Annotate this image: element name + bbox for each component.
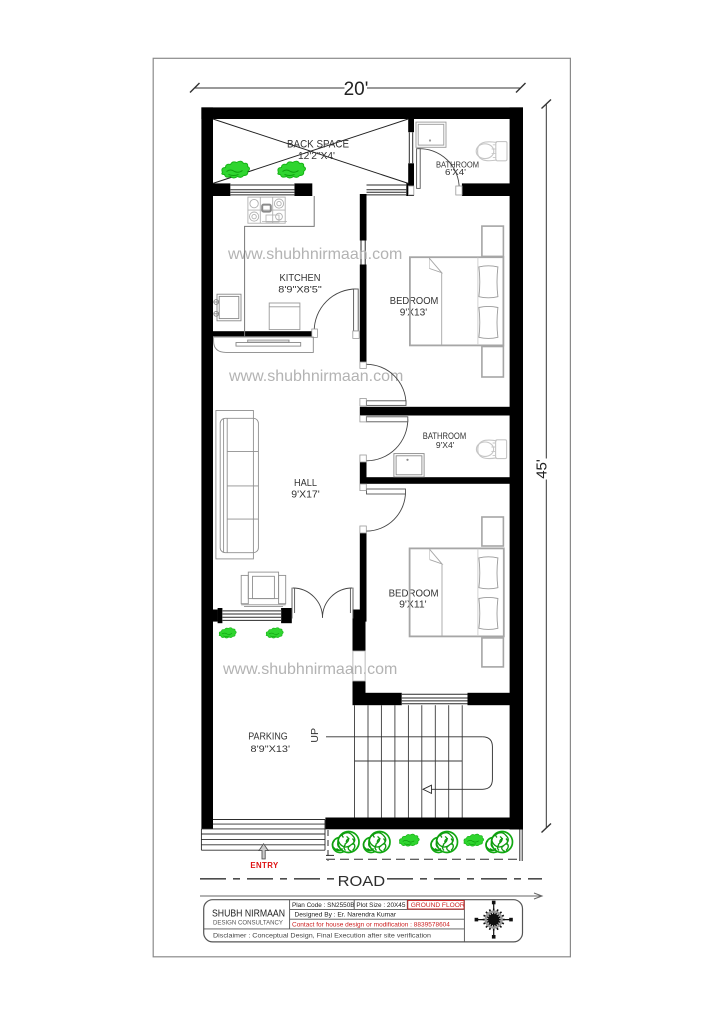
- svg-text:Disclaimer : Conceptual Design: Disclaimer : Conceptual Design, Final Ex…: [213, 933, 431, 940]
- svg-text:Plan Code : SN2550B: Plan Code : SN2550B: [292, 902, 355, 909]
- svg-text:PARKING: PARKING: [248, 730, 288, 742]
- svg-text:SHUBH NIRMAAN: SHUBH NIRMAAN: [212, 909, 285, 920]
- svg-text:DESIGN CONSULTANCY: DESIGN CONSULTANCY: [213, 920, 283, 927]
- svg-text:BEDROOM: BEDROOM: [390, 295, 439, 307]
- svg-text:9'X13': 9'X13': [400, 307, 428, 318]
- svg-text:9'X4': 9'X4': [436, 440, 455, 450]
- svg-text:www.shubhnirmaan.com: www.shubhnirmaan.com: [228, 368, 403, 385]
- svg-text:www.shubhnirmaan.com: www.shubhnirmaan.com: [222, 661, 397, 678]
- svg-text:HALL: HALL: [294, 478, 317, 489]
- svg-text:BEDROOM: BEDROOM: [389, 588, 439, 600]
- svg-text:BACK SPACE: BACK SPACE: [287, 139, 349, 151]
- svg-text:8'9"X13': 8'9"X13': [251, 744, 291, 755]
- svg-text:20': 20': [344, 79, 369, 100]
- svg-text:12'2"X4': 12'2"X4': [298, 151, 335, 162]
- svg-text:ENTRY: ENTRY: [250, 861, 279, 870]
- svg-text:Plot Size : 20X45: Plot Size : 20X45: [356, 902, 405, 909]
- svg-text:KITCHEN: KITCHEN: [280, 273, 321, 284]
- svg-text:9'X17': 9'X17': [291, 489, 320, 500]
- svg-text:8'9"X8'5": 8'9"X8'5": [278, 285, 322, 296]
- svg-text:Contact for house design or mo: Contact for house design or modification…: [292, 921, 450, 928]
- svg-text:ROAD: ROAD: [338, 873, 386, 890]
- svg-text:UP: UP: [309, 728, 321, 743]
- svg-text:Designed By : Er. Narendra Kum: Designed By : Er. Narendra Kumar: [295, 912, 397, 919]
- svg-text:9'X11': 9'X11': [399, 599, 427, 610]
- svg-text:www.shubhnirmaan.com: www.shubhnirmaan.com: [227, 246, 402, 263]
- svg-text:45': 45': [533, 459, 550, 479]
- svg-text:GROUND FLOOR: GROUND FLOOR: [411, 902, 465, 909]
